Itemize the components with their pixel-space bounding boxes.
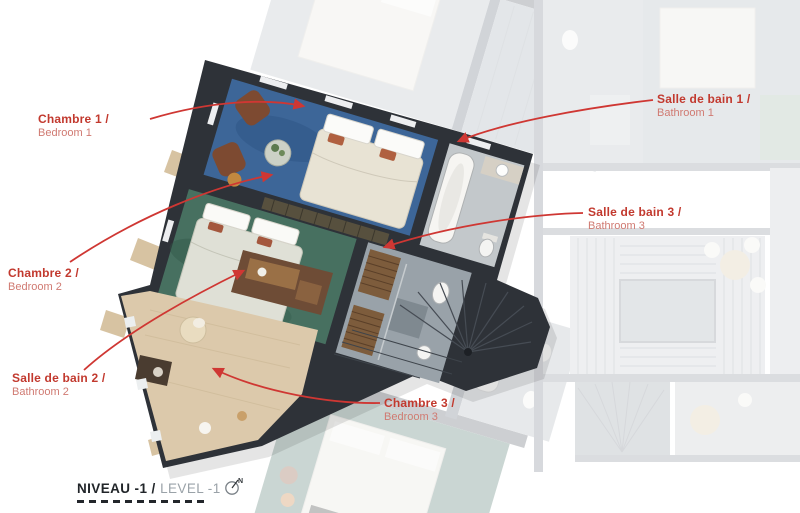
level-title: NIVEAU -1 / LEVEL -1 N <box>77 475 245 498</box>
annotation-label-en: Bathroom 3 <box>588 220 681 234</box>
annotation-label-en: Bedroom 3 <box>384 411 455 425</box>
side-table-chambre-3 <box>199 422 211 434</box>
annotation-chambre-2: Chambre 2 / Bedroom 2 <box>8 266 79 295</box>
annotation-label-fr: Chambre 1 / <box>38 112 109 127</box>
sink-icon <box>258 268 267 277</box>
floor-plan-rendering <box>0 0 800 513</box>
annotation-salle-de-bain-2: Salle de bain 2 / Bathroom 2 <box>12 371 105 400</box>
floor-plan-page: Chambre 1 / Bedroom 1 Chambre 2 / Bedroo… <box>0 0 800 513</box>
annotation-label-en: Bedroom 1 <box>38 127 109 141</box>
north-compass-icon: N <box>223 475 245 497</box>
annotation-chambre-1: Chambre 1 / Bedroom 1 <box>38 112 109 141</box>
title-dashed-underline <box>77 500 208 503</box>
annotation-label-en: Bedroom 2 <box>8 281 79 295</box>
annotation-label-fr: Chambre 2 / <box>8 266 79 281</box>
level-title-en: LEVEL -1 <box>160 481 220 496</box>
annotation-label-fr: Chambre 3 / <box>384 396 455 411</box>
compass-north-letter: N <box>238 478 243 485</box>
annotation-chambre-3: Chambre 3 / Bedroom 3 <box>384 396 455 425</box>
annotation-salle-de-bain-1: Salle de bain 1 / Bathroom 1 <box>657 92 750 121</box>
annotation-label-fr: Salle de bain 2 / <box>12 371 105 386</box>
annotation-label-fr: Salle de bain 3 / <box>588 205 681 220</box>
annotation-label-en: Bathroom 1 <box>657 107 750 121</box>
armchair-chambre-3 <box>193 318 205 328</box>
stool-chambre-3 <box>237 411 247 421</box>
annotation-salle-de-bain-3: Salle de bain 3 / Bathroom 3 <box>588 205 681 234</box>
annotation-label-en: Bathroom 2 <box>12 386 105 400</box>
annotation-label-fr: Salle de bain 1 / <box>657 92 750 107</box>
faded-neighbor-unit <box>534 0 800 472</box>
level-title-fr: NIVEAU -1 / <box>77 481 156 496</box>
